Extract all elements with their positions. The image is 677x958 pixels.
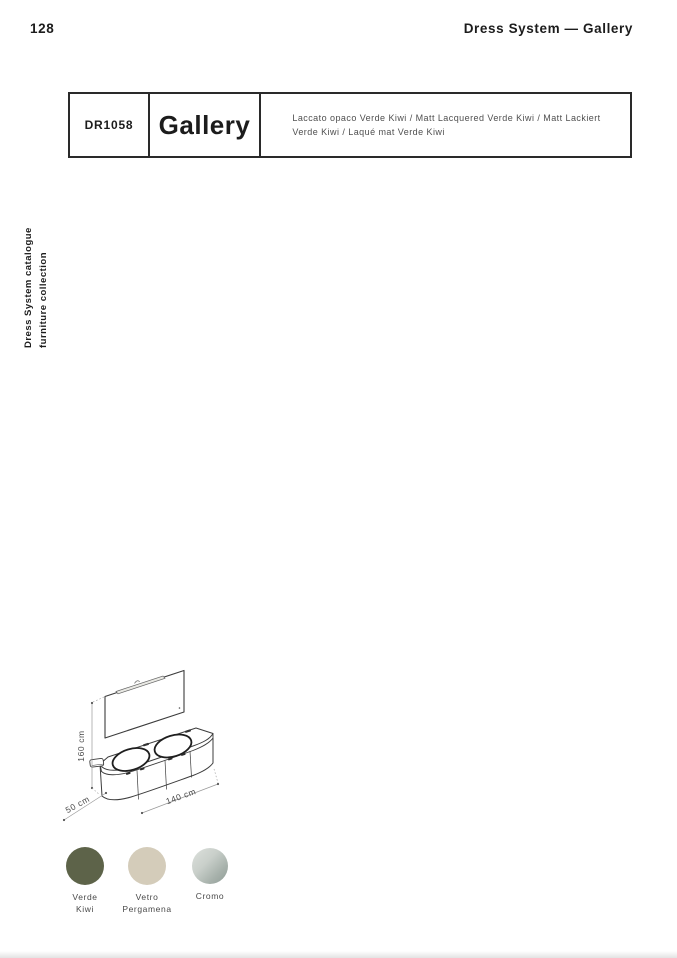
dim-dot [105, 792, 107, 794]
swatch-cromo-circle [192, 848, 228, 884]
mirror-clip-dot [179, 707, 181, 709]
running-header: Dress System — Gallery [464, 21, 633, 36]
technical-drawing: 160 cm 50 cm 140 cm [60, 660, 280, 830]
product-header-box: DR1058 Gallery Laccato opaco Verde Kiwi … [68, 92, 632, 158]
dim-ext-right [214, 769, 218, 783]
page-bottom-edge [0, 951, 677, 958]
swatch-cromo: Cromo [172, 847, 248, 902]
sidebar-caption: Dress System catalogue furniture collect… [22, 227, 51, 348]
finish-swatches: Verde Kiwi Vetro Pergamena Cromo [0, 847, 290, 927]
mirror-light-bump [135, 681, 140, 684]
mirror-outline [105, 671, 184, 739]
catalogue-page: 128 Dress System — Gallery DR1058 Galler… [0, 0, 677, 958]
swatch-cromo-label: Cromo [172, 890, 248, 902]
dim-ext-top [93, 697, 104, 702]
product-finish-description: Laccato opaco Verde Kiwi / Matt Lacquere… [261, 94, 630, 156]
dim-width-label: 140 cm [164, 786, 197, 806]
swatch-vetro-pergamena-circle [128, 847, 166, 885]
dim-dot [217, 783, 219, 785]
product-code: DR1058 [70, 94, 150, 156]
product-name: Gallery [150, 94, 261, 156]
dim-depth-label: 50 cm [64, 794, 92, 815]
dim-dot [141, 812, 143, 814]
dim-height-label: 160 cm [76, 730, 86, 761]
vanity-isometric-drawing: 160 cm 50 cm 140 cm [60, 660, 280, 830]
dim-dot [91, 702, 93, 704]
dim-ext-bottom [92, 788, 100, 795]
dim-dot [63, 819, 65, 821]
page-number: 128 [30, 21, 54, 36]
swatch-verde-kiwi-circle [66, 847, 104, 885]
